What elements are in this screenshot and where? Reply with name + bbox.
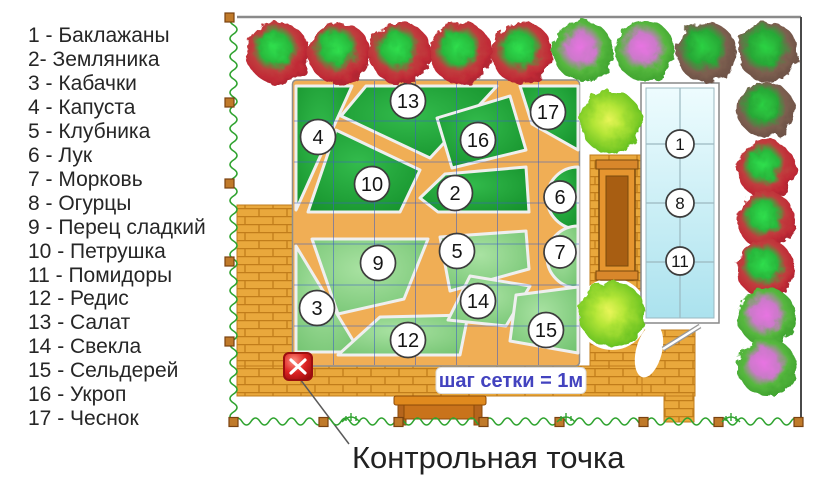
- fence-post: [225, 98, 234, 107]
- greenhouse: 1 8 11: [641, 83, 719, 349]
- tree-red-leaved: [247, 22, 309, 84]
- bed-marker-2: 2: [438, 176, 473, 211]
- svg-text:3: 3: [311, 298, 322, 320]
- svg-text:11: 11: [671, 252, 689, 271]
- bed-marker-3: 3: [300, 291, 335, 326]
- svg-text:4: 4: [312, 127, 323, 149]
- fence-post: [639, 418, 648, 427]
- tree-red-leaved: [369, 22, 431, 84]
- svg-text:14: 14: [467, 291, 489, 313]
- fence-post: [229, 418, 238, 427]
- bed-marker-14: 14: [461, 284, 496, 319]
- bed-marker-7: 7: [544, 236, 576, 268]
- svg-text:17: 17: [537, 102, 559, 124]
- svg-text:12: 12: [397, 330, 419, 352]
- tree-brown-leaved: [676, 22, 736, 82]
- bed-marker-12: 12: [391, 323, 426, 358]
- svg-text:1: 1: [675, 135, 684, 154]
- bed-marker-10: 10: [355, 167, 390, 202]
- bed-marker-11: 11: [666, 247, 694, 275]
- bed-marker-1: 1: [666, 130, 694, 158]
- bed-marker-9: 9: [361, 246, 396, 281]
- svg-text:8: 8: [675, 194, 684, 213]
- tree-red-leaved: [737, 140, 795, 198]
- bed-marker-16: 16: [461, 123, 496, 158]
- bench-vertical: [596, 160, 638, 280]
- svg-text:15: 15: [535, 320, 557, 342]
- control-point-label: Контрольная точка: [352, 440, 625, 475]
- fence-post: [394, 418, 403, 427]
- bed-marker-6: 6: [544, 181, 576, 213]
- svg-text:шаг сетки = 1м: шаг сетки = 1м: [439, 370, 583, 392]
- fence-post: [225, 13, 234, 22]
- garden-plan-drawing: 4 13 17 16 10 2 6 9 5 7 3 12 14 15 1 8 1…: [0, 0, 830, 498]
- grid-step-note: шаг сетки = 1м: [436, 368, 586, 394]
- fence-post: [225, 179, 234, 188]
- fence-post: [225, 257, 234, 266]
- svg-text:10: 10: [361, 174, 383, 196]
- fence-post: [319, 418, 328, 427]
- svg-text:5: 5: [451, 241, 462, 263]
- vegetable-bed-area: 4 13 17 16 10 2 6 9 5 7 3 12 14 15: [293, 80, 580, 366]
- tree-pink-flowering: [615, 21, 675, 81]
- fence-post: [479, 418, 488, 427]
- fence-post: [225, 337, 234, 346]
- svg-text:7: 7: [554, 242, 565, 264]
- tree-red-leaved: [308, 22, 370, 84]
- tree-pink-flowering: [553, 21, 613, 81]
- tree-pink-flowering: [738, 288, 796, 346]
- tree-brown-leaved: [738, 82, 794, 138]
- tree-pink-flowering: [738, 338, 796, 396]
- bed-marker-8: 8: [666, 189, 694, 217]
- bed-marker-13: 13: [391, 84, 426, 119]
- bed-marker-5: 5: [440, 234, 475, 269]
- garden-plan-page: 1 - Баклажаны 2- Земляника 3 - Кабачки 4…: [0, 0, 830, 498]
- svg-text:9: 9: [372, 253, 383, 275]
- tree-red-leaved: [491, 22, 553, 84]
- bush-light-green: [579, 281, 645, 347]
- fence-left: [230, 16, 237, 421]
- svg-text:6: 6: [554, 187, 565, 209]
- fence-post: [794, 418, 803, 427]
- svg-text:13: 13: [397, 91, 419, 113]
- bush-light-green: [580, 91, 642, 153]
- tree-brown-leaved: [738, 22, 798, 82]
- bed-marker-4: 4: [301, 120, 336, 155]
- fence-post: [714, 418, 723, 427]
- bed-marker-17: 17: [531, 95, 566, 130]
- svg-text:2: 2: [449, 183, 460, 205]
- bed-marker-15: 15: [529, 313, 564, 348]
- tree-red-leaved: [430, 22, 492, 84]
- svg-text:16: 16: [467, 130, 489, 152]
